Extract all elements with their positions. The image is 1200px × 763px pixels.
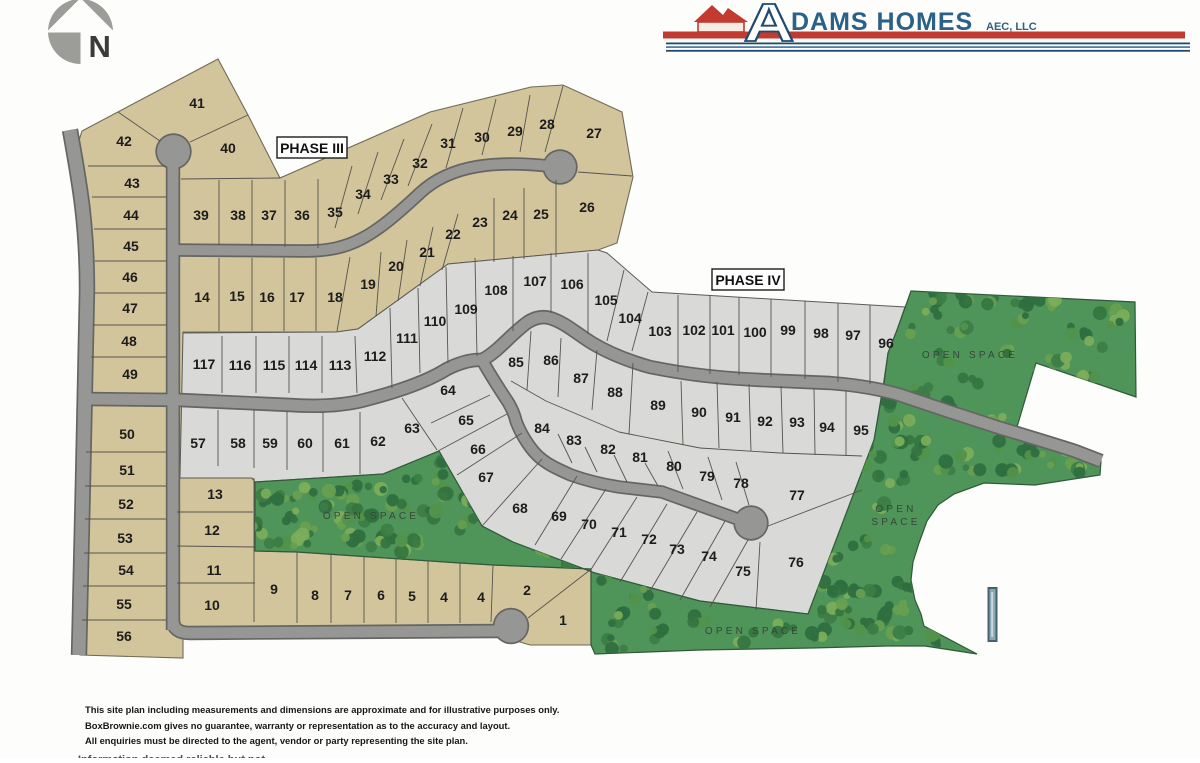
svg-text:9: 9 [270, 581, 278, 597]
svg-text:17: 17 [289, 289, 305, 305]
svg-text:44: 44 [123, 207, 139, 223]
svg-text:PHASE III: PHASE III [280, 140, 344, 156]
svg-text:70: 70 [581, 516, 597, 532]
svg-text:32: 32 [412, 155, 428, 171]
svg-text:67: 67 [478, 469, 494, 485]
svg-text:49: 49 [122, 366, 138, 382]
svg-text:46: 46 [122, 269, 138, 285]
svg-text:OPEN SPACE: OPEN SPACE [922, 350, 1018, 361]
svg-text:27: 27 [586, 125, 602, 141]
svg-text:8: 8 [311, 587, 319, 603]
svg-text:105: 105 [594, 292, 618, 308]
svg-text:71: 71 [611, 524, 627, 540]
svg-text:25: 25 [533, 206, 549, 222]
svg-text:102: 102 [682, 322, 706, 338]
svg-text:20: 20 [388, 258, 404, 274]
svg-text:48: 48 [121, 333, 137, 349]
svg-text:OPEN: OPEN [875, 504, 916, 515]
svg-text:89: 89 [650, 397, 666, 413]
svg-text:62: 62 [370, 433, 386, 449]
svg-text:11: 11 [207, 562, 222, 578]
svg-text:91: 91 [725, 409, 741, 425]
svg-text:39: 39 [193, 207, 209, 223]
svg-text:57: 57 [190, 435, 206, 451]
svg-text:64: 64 [440, 382, 456, 398]
svg-text:96: 96 [878, 335, 894, 351]
svg-text:This site plan including measu: This site plan including measurements an… [85, 704, 559, 715]
svg-text:19: 19 [360, 276, 376, 292]
svg-text:63: 63 [404, 420, 420, 436]
svg-text:10: 10 [204, 597, 220, 613]
svg-text:52: 52 [118, 496, 134, 512]
svg-text:106: 106 [560, 276, 584, 292]
svg-text:6: 6 [377, 587, 385, 603]
svg-text:50: 50 [119, 426, 135, 442]
svg-text:22: 22 [445, 226, 461, 242]
svg-text:61: 61 [334, 435, 350, 451]
svg-text:N: N [89, 29, 111, 64]
svg-text:38: 38 [230, 207, 246, 223]
svg-text:2: 2 [523, 582, 531, 598]
svg-text:93: 93 [789, 414, 805, 430]
svg-text:75: 75 [735, 563, 751, 579]
svg-text:54: 54 [118, 562, 134, 578]
svg-text:31: 31 [440, 135, 456, 151]
svg-text:116: 116 [229, 357, 252, 373]
svg-text:99: 99 [780, 322, 796, 338]
svg-text:56: 56 [116, 628, 132, 644]
svg-text:29: 29 [507, 123, 523, 139]
svg-text:37: 37 [261, 207, 277, 223]
svg-text:PHASE IV: PHASE IV [715, 272, 781, 288]
svg-text:16: 16 [259, 289, 275, 305]
svg-text:1: 1 [559, 612, 567, 628]
svg-text:103: 103 [648, 323, 672, 339]
svg-text:All enquiries must be directed: All enquiries must be directed to the ag… [85, 735, 468, 746]
svg-text:100: 100 [743, 324, 767, 340]
svg-text:114: 114 [295, 357, 318, 373]
svg-text:13: 13 [207, 486, 223, 502]
svg-text:87: 87 [573, 370, 589, 386]
svg-text:74: 74 [701, 548, 717, 564]
svg-text:Information deemed reliable bu: Information deemed reliable but not [78, 754, 265, 758]
svg-text:35: 35 [327, 204, 343, 220]
svg-text:34: 34 [355, 186, 371, 202]
svg-text:33: 33 [383, 171, 399, 187]
svg-text:66: 66 [470, 441, 486, 457]
svg-text:92: 92 [757, 413, 773, 429]
svg-text:79: 79 [699, 468, 715, 484]
svg-text:AEC, LLC: AEC, LLC [986, 21, 1037, 33]
svg-text:90: 90 [691, 404, 707, 420]
svg-text:59: 59 [262, 435, 278, 451]
svg-text:23: 23 [472, 214, 488, 230]
svg-text:28: 28 [539, 116, 555, 132]
svg-text:69: 69 [551, 508, 567, 524]
svg-text:109: 109 [454, 301, 478, 317]
svg-text:7: 7 [344, 587, 352, 603]
svg-text:78: 78 [733, 475, 749, 491]
svg-text:4: 4 [477, 589, 485, 605]
svg-text:107: 107 [523, 273, 547, 289]
svg-text:21: 21 [419, 244, 435, 260]
svg-text:40: 40 [220, 140, 236, 156]
svg-text:81: 81 [632, 449, 648, 465]
svg-text:14: 14 [194, 289, 210, 305]
svg-text:55: 55 [116, 596, 132, 612]
svg-text:51: 51 [119, 462, 135, 478]
svg-text:45: 45 [123, 238, 139, 254]
svg-text:4: 4 [440, 589, 448, 605]
svg-text:83: 83 [566, 432, 582, 448]
svg-text:113: 113 [329, 357, 352, 373]
svg-text:43: 43 [124, 175, 140, 191]
svg-text:84: 84 [534, 420, 550, 436]
svg-text:A: A [744, 0, 795, 53]
svg-text:47: 47 [122, 300, 138, 316]
svg-text:53: 53 [117, 530, 133, 546]
svg-text:26: 26 [579, 199, 595, 215]
svg-text:94: 94 [819, 419, 835, 435]
svg-text:58: 58 [230, 435, 246, 451]
svg-text:117: 117 [193, 356, 216, 372]
svg-text:15: 15 [229, 288, 245, 304]
svg-text:104: 104 [618, 310, 642, 326]
svg-text:30: 30 [474, 129, 490, 145]
svg-text:42: 42 [116, 133, 132, 149]
svg-text:DAMS HOMES: DAMS HOMES [791, 8, 973, 36]
svg-text:OPEN SPACE: OPEN SPACE [705, 626, 801, 637]
svg-text:24: 24 [502, 207, 518, 223]
svg-text:18: 18 [327, 289, 343, 305]
svg-text:77: 77 [789, 487, 805, 503]
svg-text:98: 98 [813, 325, 829, 341]
svg-text:OPEN SPACE: OPEN SPACE [323, 511, 419, 522]
svg-text:60: 60 [297, 435, 313, 451]
svg-text:110: 110 [424, 313, 447, 329]
svg-text:97: 97 [845, 327, 861, 343]
svg-text:88: 88 [607, 384, 623, 400]
svg-text:101: 101 [711, 322, 735, 338]
svg-text:80: 80 [666, 458, 682, 474]
svg-text:72: 72 [641, 531, 657, 547]
svg-text:68: 68 [512, 500, 528, 516]
svg-text:111: 111 [396, 330, 418, 346]
svg-text:SPACE: SPACE [871, 517, 920, 528]
svg-text:115: 115 [263, 357, 286, 373]
svg-text:73: 73 [669, 541, 685, 557]
svg-text:95: 95 [853, 422, 869, 438]
svg-text:65: 65 [458, 412, 474, 428]
svg-text:12: 12 [204, 522, 220, 538]
svg-text:86: 86 [543, 352, 559, 368]
svg-text:36: 36 [294, 207, 310, 223]
svg-text:82: 82 [600, 441, 616, 457]
svg-text:BoxBrownie.com gives no guaran: BoxBrownie.com gives no guarantee, warra… [85, 720, 510, 731]
svg-text:85: 85 [508, 354, 524, 370]
svg-text:5: 5 [408, 588, 416, 604]
svg-text:76: 76 [788, 554, 804, 570]
svg-text:41: 41 [189, 95, 205, 111]
svg-text:108: 108 [484, 282, 508, 298]
svg-text:112: 112 [364, 348, 387, 364]
